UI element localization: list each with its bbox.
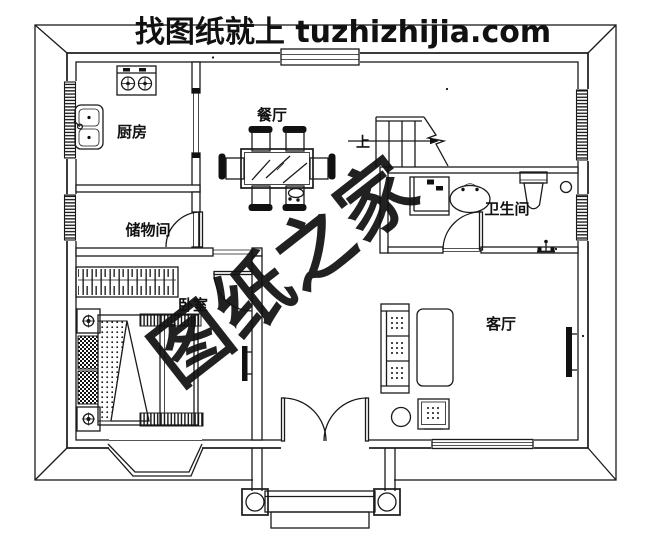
floor-drain (537, 240, 555, 252)
kitchen-stove (117, 66, 156, 95)
label-storage: 储物间 (125, 221, 170, 239)
bathroom-vent (561, 182, 572, 193)
window-right-bathroom (577, 195, 588, 240)
door-bathroom (443, 212, 483, 250)
floor-plan-page: 上 (0, 0, 650, 536)
window-left-storage (65, 195, 76, 240)
label-dining: 餐厅 (257, 106, 287, 124)
door-storage (166, 212, 203, 247)
sofa (381, 304, 409, 393)
kitchen-sink (74, 105, 103, 149)
label-kitchen: 厨房 (117, 123, 147, 141)
diagonal-watermark: 图纸之家 (134, 140, 435, 402)
site-title-watermark: 找图纸就上 tuzhizhijia.com (135, 15, 551, 50)
living-tv (566, 327, 577, 377)
side-stool (392, 408, 411, 427)
coffee-table (417, 309, 453, 386)
wardrobe (76, 267, 178, 297)
window-left-kitchen (65, 82, 76, 158)
window-right-stairhall (577, 90, 588, 160)
label-bathroom: 卫生间 (484, 200, 529, 218)
entry-double-door (282, 398, 369, 441)
floor-plan-drawing: 上 (0, 0, 650, 536)
label-living: 客厅 (485, 315, 516, 333)
armchair (418, 399, 449, 429)
entry-porch (242, 448, 400, 528)
